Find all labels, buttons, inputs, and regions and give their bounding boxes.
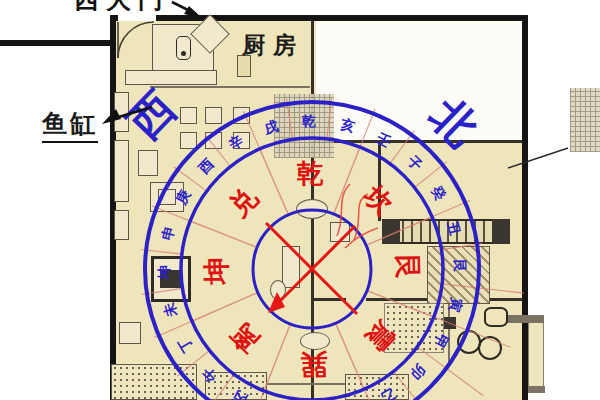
kitchen-label: 厨房 [242, 30, 304, 61]
entry-door-label-clipped: 西大门 [70, 0, 220, 11]
entry-door-label-text: 西大门 [74, 0, 170, 11]
fish-tank-arrow-head [102, 109, 121, 124]
feng-shui-floorplan: 子癸丑艮寅甲卯乙辰巽巳丙午丁未坤申庚酉辛戌乾亥壬坎艮震巽离坤兑乾北西 厨房 鱼缸… [0, 0, 600, 400]
fish-tank-label: 鱼缸 [42, 107, 98, 143]
